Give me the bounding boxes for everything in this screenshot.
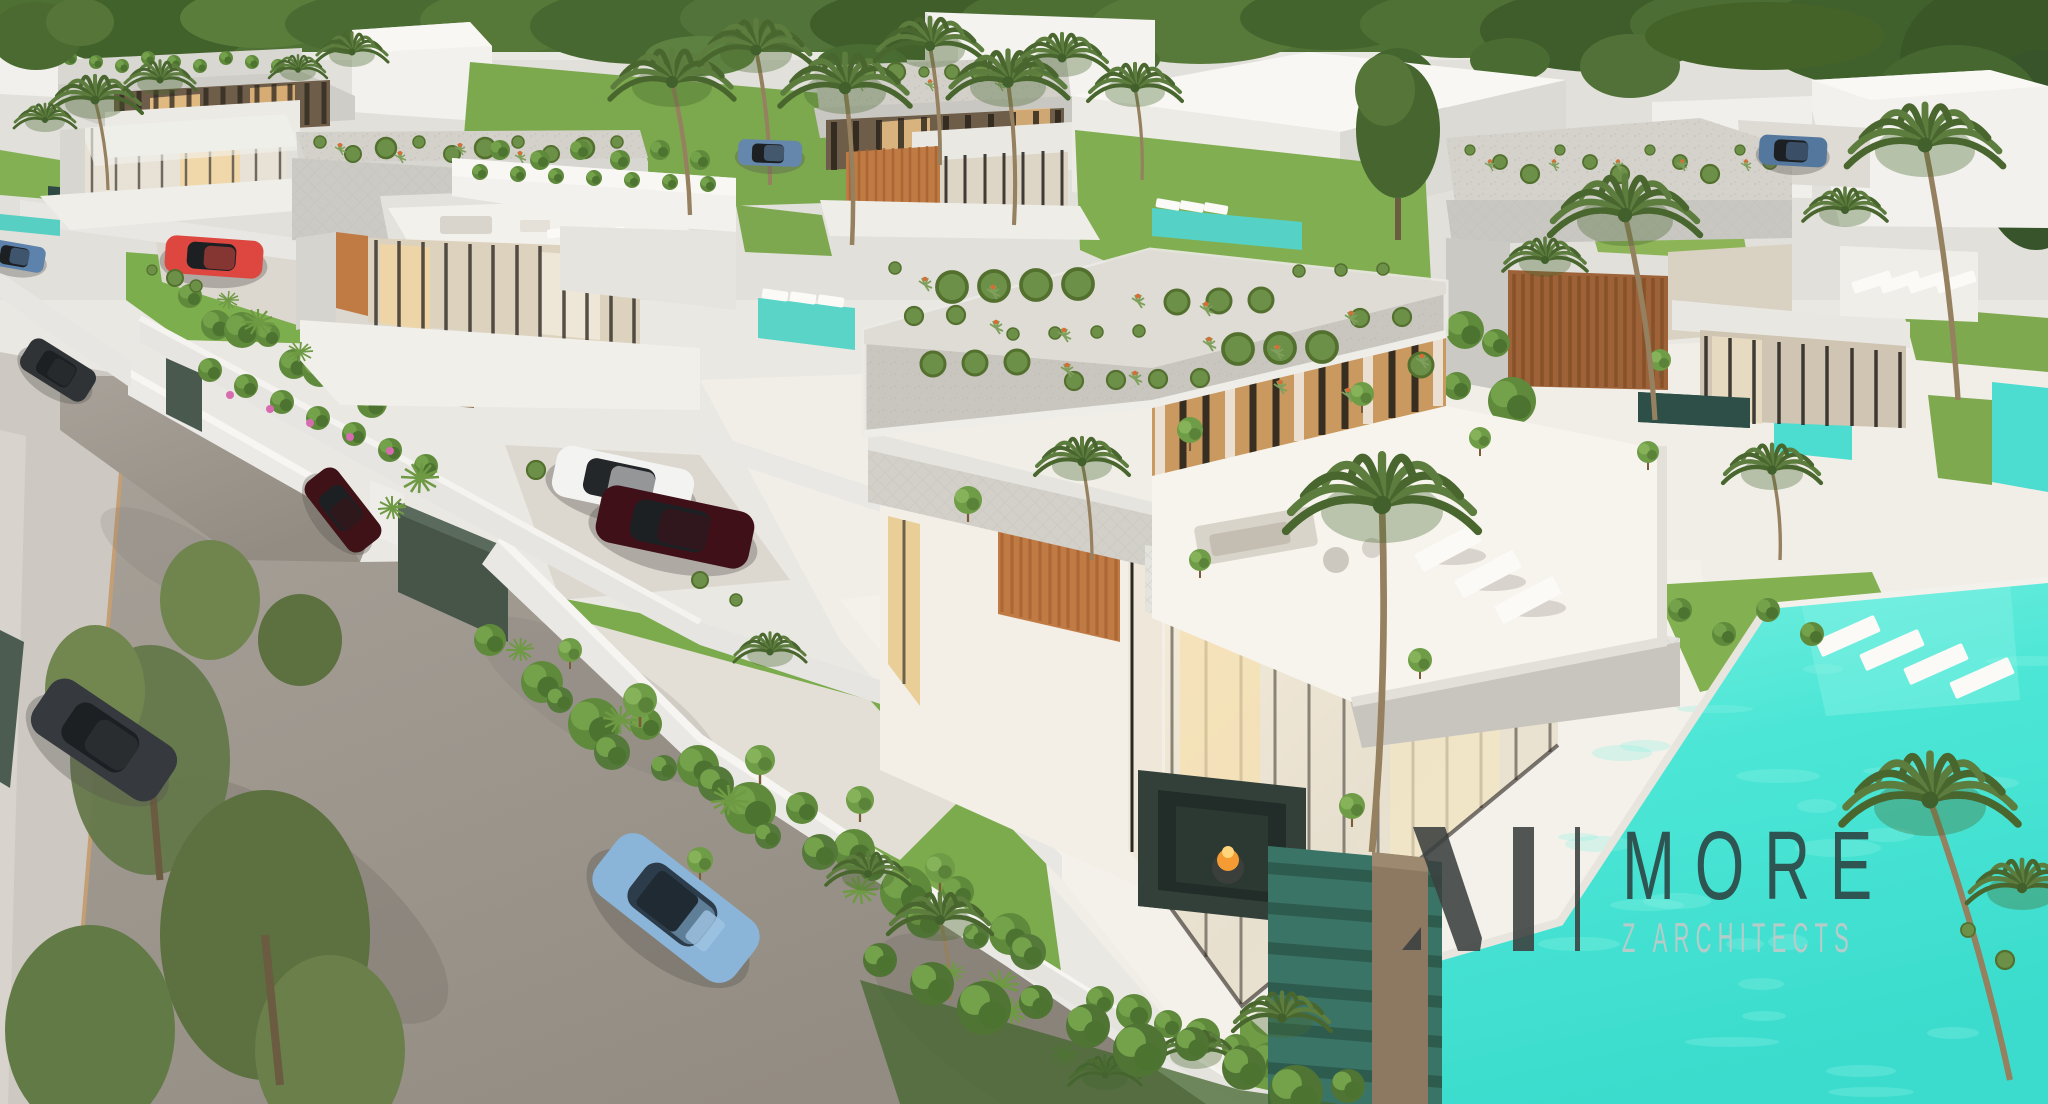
svg-text:MORE: MORE	[1622, 811, 1892, 920]
svg-text:Z ARCHITECTS: Z ARCHITECTS	[1622, 914, 1855, 961]
